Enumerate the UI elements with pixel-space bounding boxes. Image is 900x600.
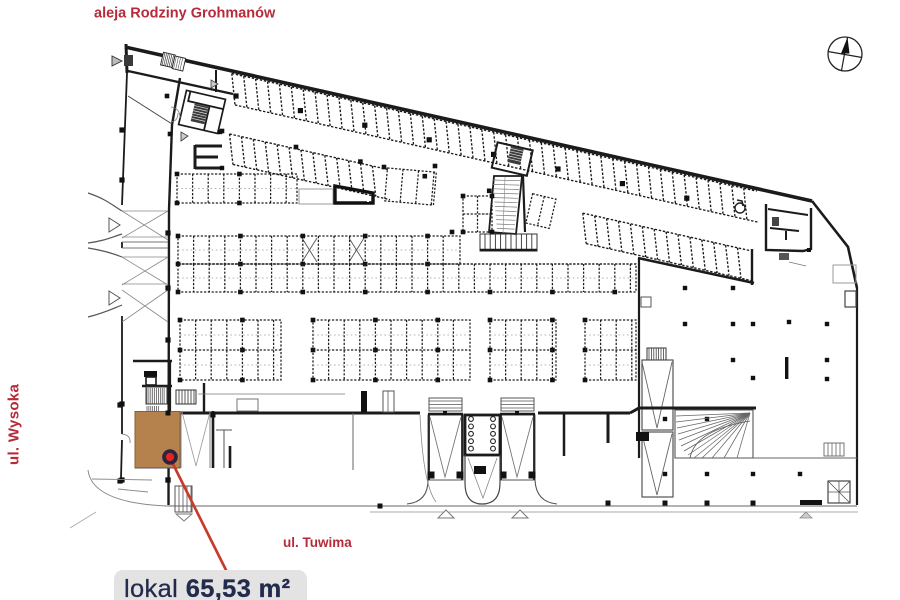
svg-text:lokal 65,53 m²: lokal 65,53 m² [124, 575, 291, 600]
svg-text:aleja Rodziny Grohmanów: aleja Rodziny Grohmanów [94, 6, 276, 22]
svg-text:ul. Wysoka: ul. Wysoka [6, 384, 23, 465]
svg-text:ul. Tuwima: ul. Tuwima [283, 535, 352, 550]
